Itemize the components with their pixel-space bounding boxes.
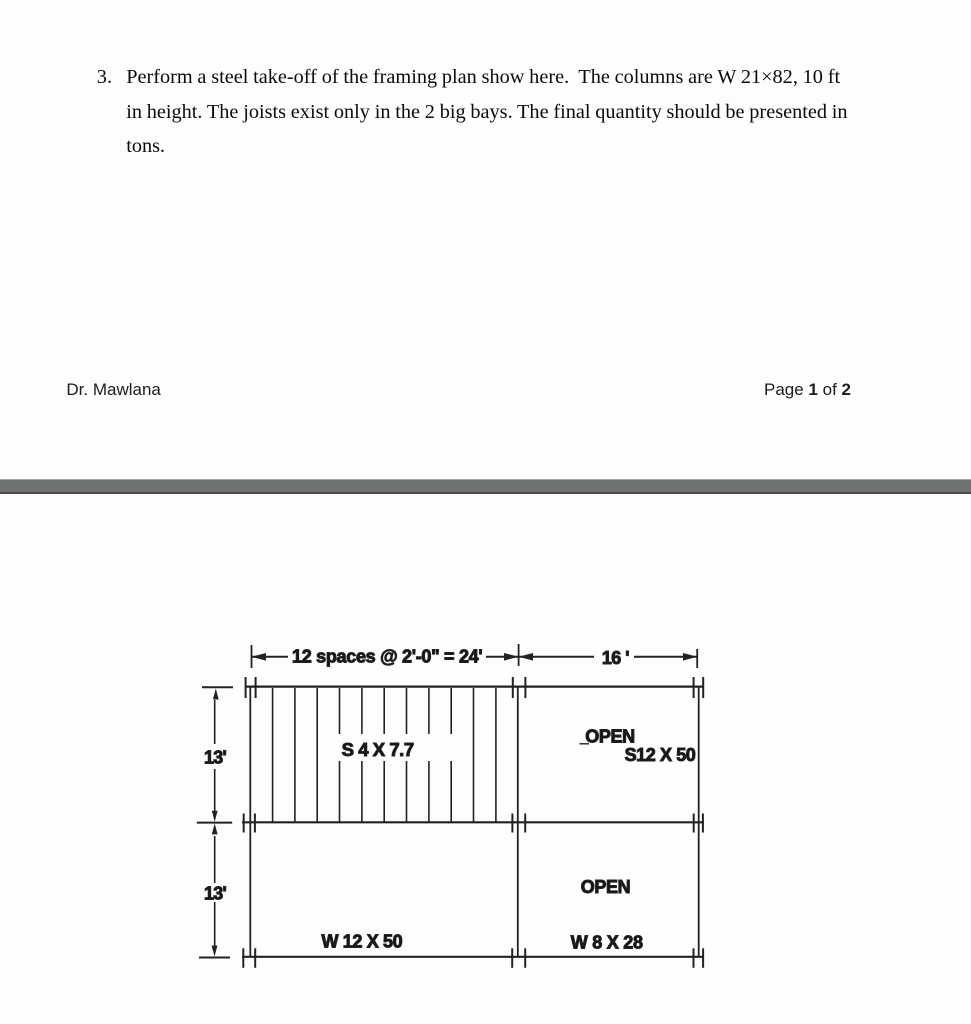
- svg-text:W 8 X 28: W 8 X 28: [571, 933, 643, 953]
- svg-text:OPEN: OPEN: [585, 726, 634, 746]
- svg-text:13': 13': [204, 747, 226, 767]
- svg-text:OPEN: OPEN: [581, 877, 630, 897]
- svg-text:13': 13': [204, 884, 226, 904]
- svg-text:16 ': 16 ': [602, 648, 629, 668]
- svg-text:W 12 X 50: W 12 X 50: [321, 931, 402, 951]
- svg-text:S12 X 50: S12 X 50: [625, 745, 696, 765]
- svg-text:12 spaces @ 2'-0" = 24': 12 spaces @ 2'-0" = 24': [292, 647, 482, 667]
- svg-text:S 4 X 7.7: S 4 X 7.7: [342, 739, 414, 760]
